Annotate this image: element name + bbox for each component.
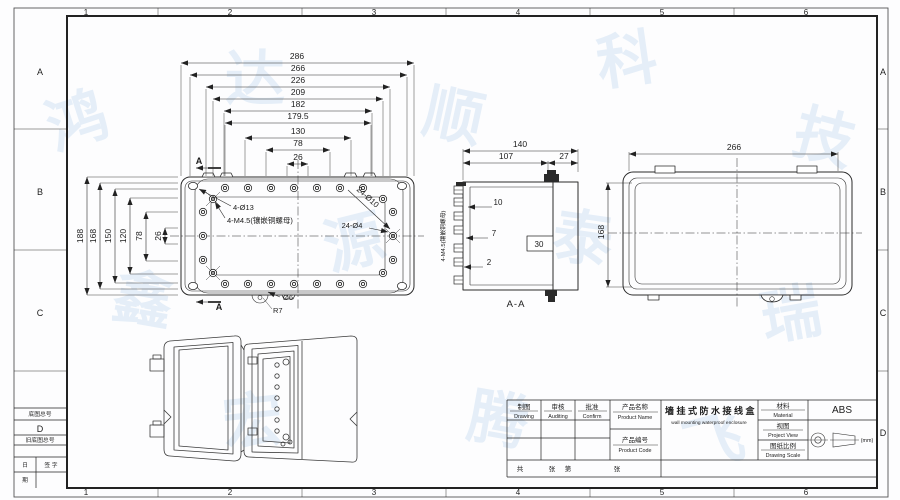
dim-30: 30 (535, 240, 544, 249)
sheet-no-label: 第 (565, 464, 572, 473)
zone-number: 6 (804, 8, 809, 17)
auditing-label-cn: 审核 (552, 402, 566, 411)
notch-dia-label: Ø6 (283, 293, 293, 302)
dim-78-v: 78 (134, 231, 144, 241)
product-title-en: wall mounting waterproof enclosure (671, 420, 747, 426)
zone-letter: B (880, 187, 886, 197)
base-drawing-no-label: 底图总号 (28, 410, 51, 418)
zone-number: 3 (372, 488, 377, 497)
projection-symbol-icon (808, 433, 859, 447)
zone-letter: C (880, 308, 887, 318)
product-name-label-cn: 产品名称 (622, 402, 649, 411)
product-code-label-cn: 产品编号 (622, 435, 649, 444)
confirm-label-cn: 批准 (586, 402, 600, 411)
drawing-label-cn: 制图 (518, 402, 531, 411)
drawing-sheet: 鸿 达 顺 科 技 鑫 源 泰 瑞 宏 腾 飞 1 2 3 4 5 6 1 2 (0, 0, 900, 500)
product-title-cn: 墙挂式防水接线盒 (665, 405, 757, 416)
insert-label: 4-M4.5(镶嵌铜螺母) (227, 215, 293, 225)
dim-lid-168: 168 (596, 225, 606, 239)
dim-150: 150 (103, 229, 113, 243)
dim-168: 168 (88, 229, 98, 243)
dim-226: 226 (291, 75, 305, 85)
product-name-label-en: Product Name (618, 415, 652, 421)
dim-10: 10 (494, 198, 503, 207)
watermark-glyph: 鑫 (108, 262, 179, 338)
ring-holes-inner-label: 24-Ø4 (342, 221, 363, 230)
dim-lid-266: 266 (727, 142, 741, 152)
confirm-label-en: Confirm (583, 414, 602, 420)
dim-120: 120 (118, 229, 128, 243)
material-label-en: Material (773, 413, 792, 419)
zone-number: 2 (228, 488, 233, 497)
dim-7: 7 (492, 229, 497, 238)
dim-266: 266 (291, 63, 305, 73)
dim-107: 107 (499, 151, 513, 161)
dim-130: 130 (291, 126, 305, 136)
dim-179-5: 179.5 (287, 111, 309, 121)
corner-holes-label: 4-Ø13 (233, 203, 254, 212)
auditing-label-en: Auditing (548, 414, 567, 420)
section-marker-bottom: A (216, 302, 223, 312)
watermark-glyph: 瑞 (756, 276, 827, 352)
date-label-top: 日 (22, 462, 28, 469)
zone-number: 5 (660, 488, 665, 497)
watermark-glyph: 鸿 (38, 80, 116, 162)
sheet-no-unit: 张 (614, 464, 621, 473)
view-label-cn: 视图 (777, 421, 790, 430)
zone-letter: D (880, 428, 887, 438)
zone-number: 1 (84, 8, 89, 17)
dim-26-h: 26 (293, 152, 303, 162)
dim-140: 140 (513, 139, 527, 149)
cad-canvas: 鸿 达 顺 科 技 鑫 源 泰 瑞 宏 腾 飞 1 2 3 4 5 6 1 2 (0, 0, 900, 500)
product-code-label-en: Product Code (619, 448, 652, 454)
zone-number: 4 (516, 8, 521, 17)
dim-286: 286 (290, 51, 304, 61)
dim-2: 2 (487, 258, 492, 267)
dim-188: 188 (75, 229, 85, 243)
sheet-total-label: 共 (517, 464, 524, 473)
scale-label-cn: 图纸比例 (770, 441, 796, 450)
material-label-cn: 材料 (777, 401, 791, 410)
zone-letter: C (37, 308, 44, 318)
zone-number: 6 (804, 488, 809, 497)
zone-number: 5 (660, 8, 665, 17)
material-value: ABS (832, 405, 852, 416)
dim-27: 27 (559, 151, 569, 161)
sheet-total-unit: 张 (549, 464, 556, 473)
zone-letter: A (37, 67, 43, 77)
section-side-label: 4-M4.5(镶嵌铜螺母) (439, 210, 447, 261)
dim-78-h: 78 (293, 138, 303, 148)
date-label-bottom: 期 (22, 477, 28, 484)
watermark-glyph: 泰 (548, 202, 618, 277)
dim-209: 209 (291, 87, 305, 97)
zone-number: 3 (372, 8, 377, 17)
corner-block: 底图总号 旧底图总号 日 期 签 字 (14, 408, 67, 488)
watermark-glyph: 达 (225, 46, 285, 113)
zone-letter: A (880, 67, 886, 77)
notch-radius-label: R7 (273, 306, 283, 315)
section-marker-top: A (196, 156, 203, 166)
unit-label: (mm) (861, 438, 874, 444)
zone-number: 4 (516, 488, 521, 497)
section-caption: A-A (507, 299, 526, 310)
view-label-en: Project View (768, 433, 798, 439)
old-base-drawing-no-label: 旧底图总号 (26, 436, 55, 444)
dim-26-v: 26 (153, 231, 163, 241)
signature-label: 签 字 (44, 461, 57, 469)
dim-182: 182 (291, 99, 305, 109)
watermark-glyph: 科 (592, 23, 661, 98)
scale-label-en: Drawing Scale (766, 453, 801, 459)
zone-letter: B (37, 187, 43, 197)
zone-number: 1 (84, 488, 89, 497)
zone-number: 2 (228, 8, 233, 17)
drawing-label-en: Drawing (514, 414, 534, 420)
watermark-glyph: 顺 (417, 77, 490, 155)
zone-letter: D (37, 424, 44, 434)
